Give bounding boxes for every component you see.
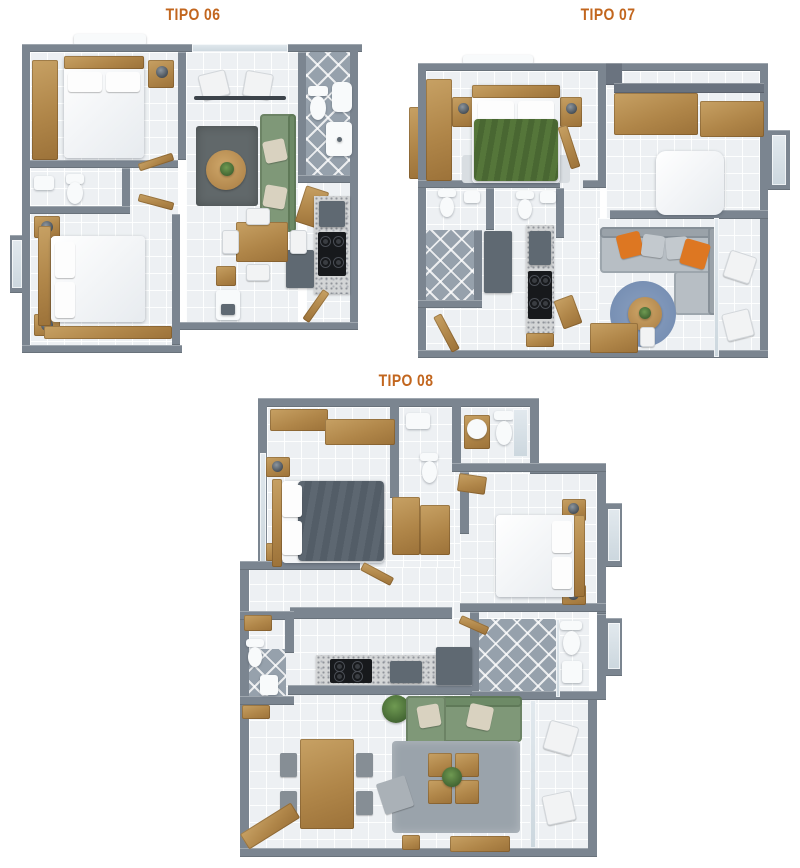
- wardrobe: [426, 79, 452, 181]
- cabinet: [420, 505, 450, 555]
- window: [608, 623, 620, 669]
- toilet: [310, 96, 326, 120]
- chair: [280, 753, 297, 777]
- wall: [22, 345, 182, 353]
- headboard: [272, 479, 282, 567]
- sink: [464, 191, 480, 203]
- window: [608, 509, 620, 561]
- pillow: [641, 234, 666, 259]
- bed: [656, 151, 724, 215]
- pillow: [262, 138, 288, 164]
- sink: [467, 419, 487, 439]
- dining-table: [590, 323, 638, 353]
- chair: [246, 208, 270, 225]
- wardrobe: [32, 60, 58, 160]
- wall: [298, 52, 306, 182]
- fridge: [436, 647, 472, 685]
- wall: [418, 63, 426, 358]
- chair: [356, 753, 373, 777]
- toilet: [496, 421, 512, 445]
- pillow: [282, 485, 302, 517]
- stool: [216, 266, 236, 286]
- balcony-glass: [530, 700, 536, 848]
- wall: [30, 206, 130, 214]
- pillow: [416, 703, 441, 728]
- lamp: [458, 103, 469, 114]
- plan-title-tipo-07: TIPO 07: [534, 6, 682, 23]
- burner: [334, 237, 343, 246]
- wall: [418, 63, 603, 71]
- sink: [540, 191, 556, 203]
- bathroom-floor: [420, 230, 482, 305]
- floor-plans-sheet: TIPO 06 TIPO 07 TIPO 08: [0, 0, 800, 868]
- wall: [598, 63, 606, 188]
- bench: [457, 473, 487, 495]
- shower-drain: [337, 137, 342, 142]
- floor-plan-tipo-08: [230, 393, 622, 868]
- toilet: [560, 621, 582, 630]
- balcony-railing: [194, 96, 286, 100]
- wall: [452, 463, 606, 472]
- lamp: [566, 103, 577, 114]
- sink: [332, 82, 352, 112]
- toilet: [494, 411, 514, 420]
- toilet: [420, 453, 438, 461]
- wall: [556, 188, 564, 238]
- wall: [486, 188, 494, 230]
- sink: [562, 661, 582, 683]
- chair: [640, 327, 655, 347]
- shower: [513, 409, 528, 457]
- dining-table: [300, 739, 354, 829]
- duvet: [298, 481, 384, 561]
- chair: [222, 230, 239, 254]
- wall: [597, 614, 606, 700]
- balcony-glass: [192, 44, 288, 52]
- kitchen-sink: [319, 201, 345, 227]
- wall: [597, 465, 606, 614]
- plant: [639, 307, 651, 319]
- tv-console: [450, 836, 510, 852]
- cabinet: [392, 497, 420, 555]
- pillow: [262, 184, 287, 209]
- toilet: [440, 197, 454, 217]
- burner: [335, 672, 344, 681]
- sink: [260, 675, 278, 695]
- burner: [541, 299, 550, 308]
- balcony-glass: [714, 218, 719, 357]
- toilet: [308, 86, 328, 96]
- pillow: [466, 703, 494, 731]
- wall: [240, 696, 294, 705]
- plan-title-tipo-06: TIPO 06: [119, 6, 267, 23]
- fridge: [484, 231, 512, 293]
- wall: [474, 230, 482, 305]
- wardrobe: [614, 93, 698, 135]
- window: [772, 135, 786, 185]
- burner: [530, 299, 539, 308]
- wall: [298, 175, 350, 183]
- duvet: [474, 119, 558, 181]
- shower-glass: [556, 619, 560, 697]
- sink: [406, 413, 430, 429]
- toilet: [516, 191, 534, 199]
- shelf: [244, 615, 272, 631]
- island-base: [526, 333, 554, 347]
- toilet: [563, 631, 580, 655]
- wall: [174, 322, 358, 330]
- pillow: [552, 557, 572, 589]
- bench: [242, 705, 270, 719]
- lamp: [272, 461, 283, 472]
- pillow: [55, 242, 75, 278]
- dining-table: [236, 222, 288, 262]
- pillow: [552, 521, 572, 553]
- toilet: [518, 199, 532, 219]
- plant: [442, 767, 462, 787]
- wall: [172, 214, 180, 345]
- wall: [418, 300, 482, 308]
- lamp: [568, 503, 579, 514]
- toilet: [422, 461, 437, 483]
- fridge: [286, 250, 314, 288]
- balcony-chair: [541, 790, 577, 826]
- burner: [321, 237, 330, 246]
- wardrobe-shelf: [614, 83, 764, 93]
- burner: [530, 276, 539, 285]
- pillow: [282, 521, 302, 555]
- floor-plan-tipo-06: [10, 30, 392, 370]
- toilet: [438, 189, 456, 197]
- burner: [541, 276, 550, 285]
- burner: [334, 258, 343, 267]
- wall: [603, 63, 768, 71]
- washing-machine-door: [221, 304, 235, 315]
- cooktop: [330, 659, 372, 683]
- cooktop: [318, 232, 346, 276]
- chair: [290, 230, 307, 254]
- wall: [452, 398, 461, 470]
- wardrobe: [270, 409, 328, 431]
- lamp: [156, 66, 168, 78]
- toilet: [67, 182, 83, 204]
- wall: [285, 611, 294, 653]
- wall: [290, 607, 452, 619]
- wall: [588, 693, 597, 857]
- wardrobe: [325, 419, 395, 445]
- headboard: [574, 515, 585, 597]
- toilet: [246, 639, 264, 647]
- headboard: [472, 85, 560, 98]
- pillow: [55, 282, 75, 318]
- plan-title-tipo-08: TIPO 08: [332, 372, 480, 389]
- bathroom-floor: [478, 619, 556, 691]
- burner: [335, 662, 344, 671]
- kitchen-sink: [390, 661, 422, 683]
- wall: [22, 44, 30, 353]
- sofa-back: [288, 114, 296, 232]
- plant: [220, 162, 234, 176]
- floor-plan-tipo-07: [408, 55, 798, 370]
- headboard: [64, 56, 144, 69]
- wall: [390, 398, 399, 498]
- wardrobe: [700, 101, 764, 137]
- cooktop: [528, 271, 552, 319]
- headboard: [38, 226, 51, 326]
- counter-front: [288, 685, 472, 695]
- burner: [353, 672, 362, 681]
- window: [12, 240, 22, 288]
- kitchen-sink: [529, 231, 551, 265]
- sink: [34, 176, 54, 190]
- pillow: [68, 72, 102, 92]
- chair: [246, 264, 270, 281]
- stool: [402, 835, 420, 850]
- wall: [178, 52, 186, 160]
- chair: [356, 791, 373, 815]
- burner: [321, 258, 330, 267]
- toilet: [248, 647, 262, 667]
- bench: [44, 326, 172, 339]
- burner: [353, 662, 362, 671]
- pillow: [106, 72, 140, 92]
